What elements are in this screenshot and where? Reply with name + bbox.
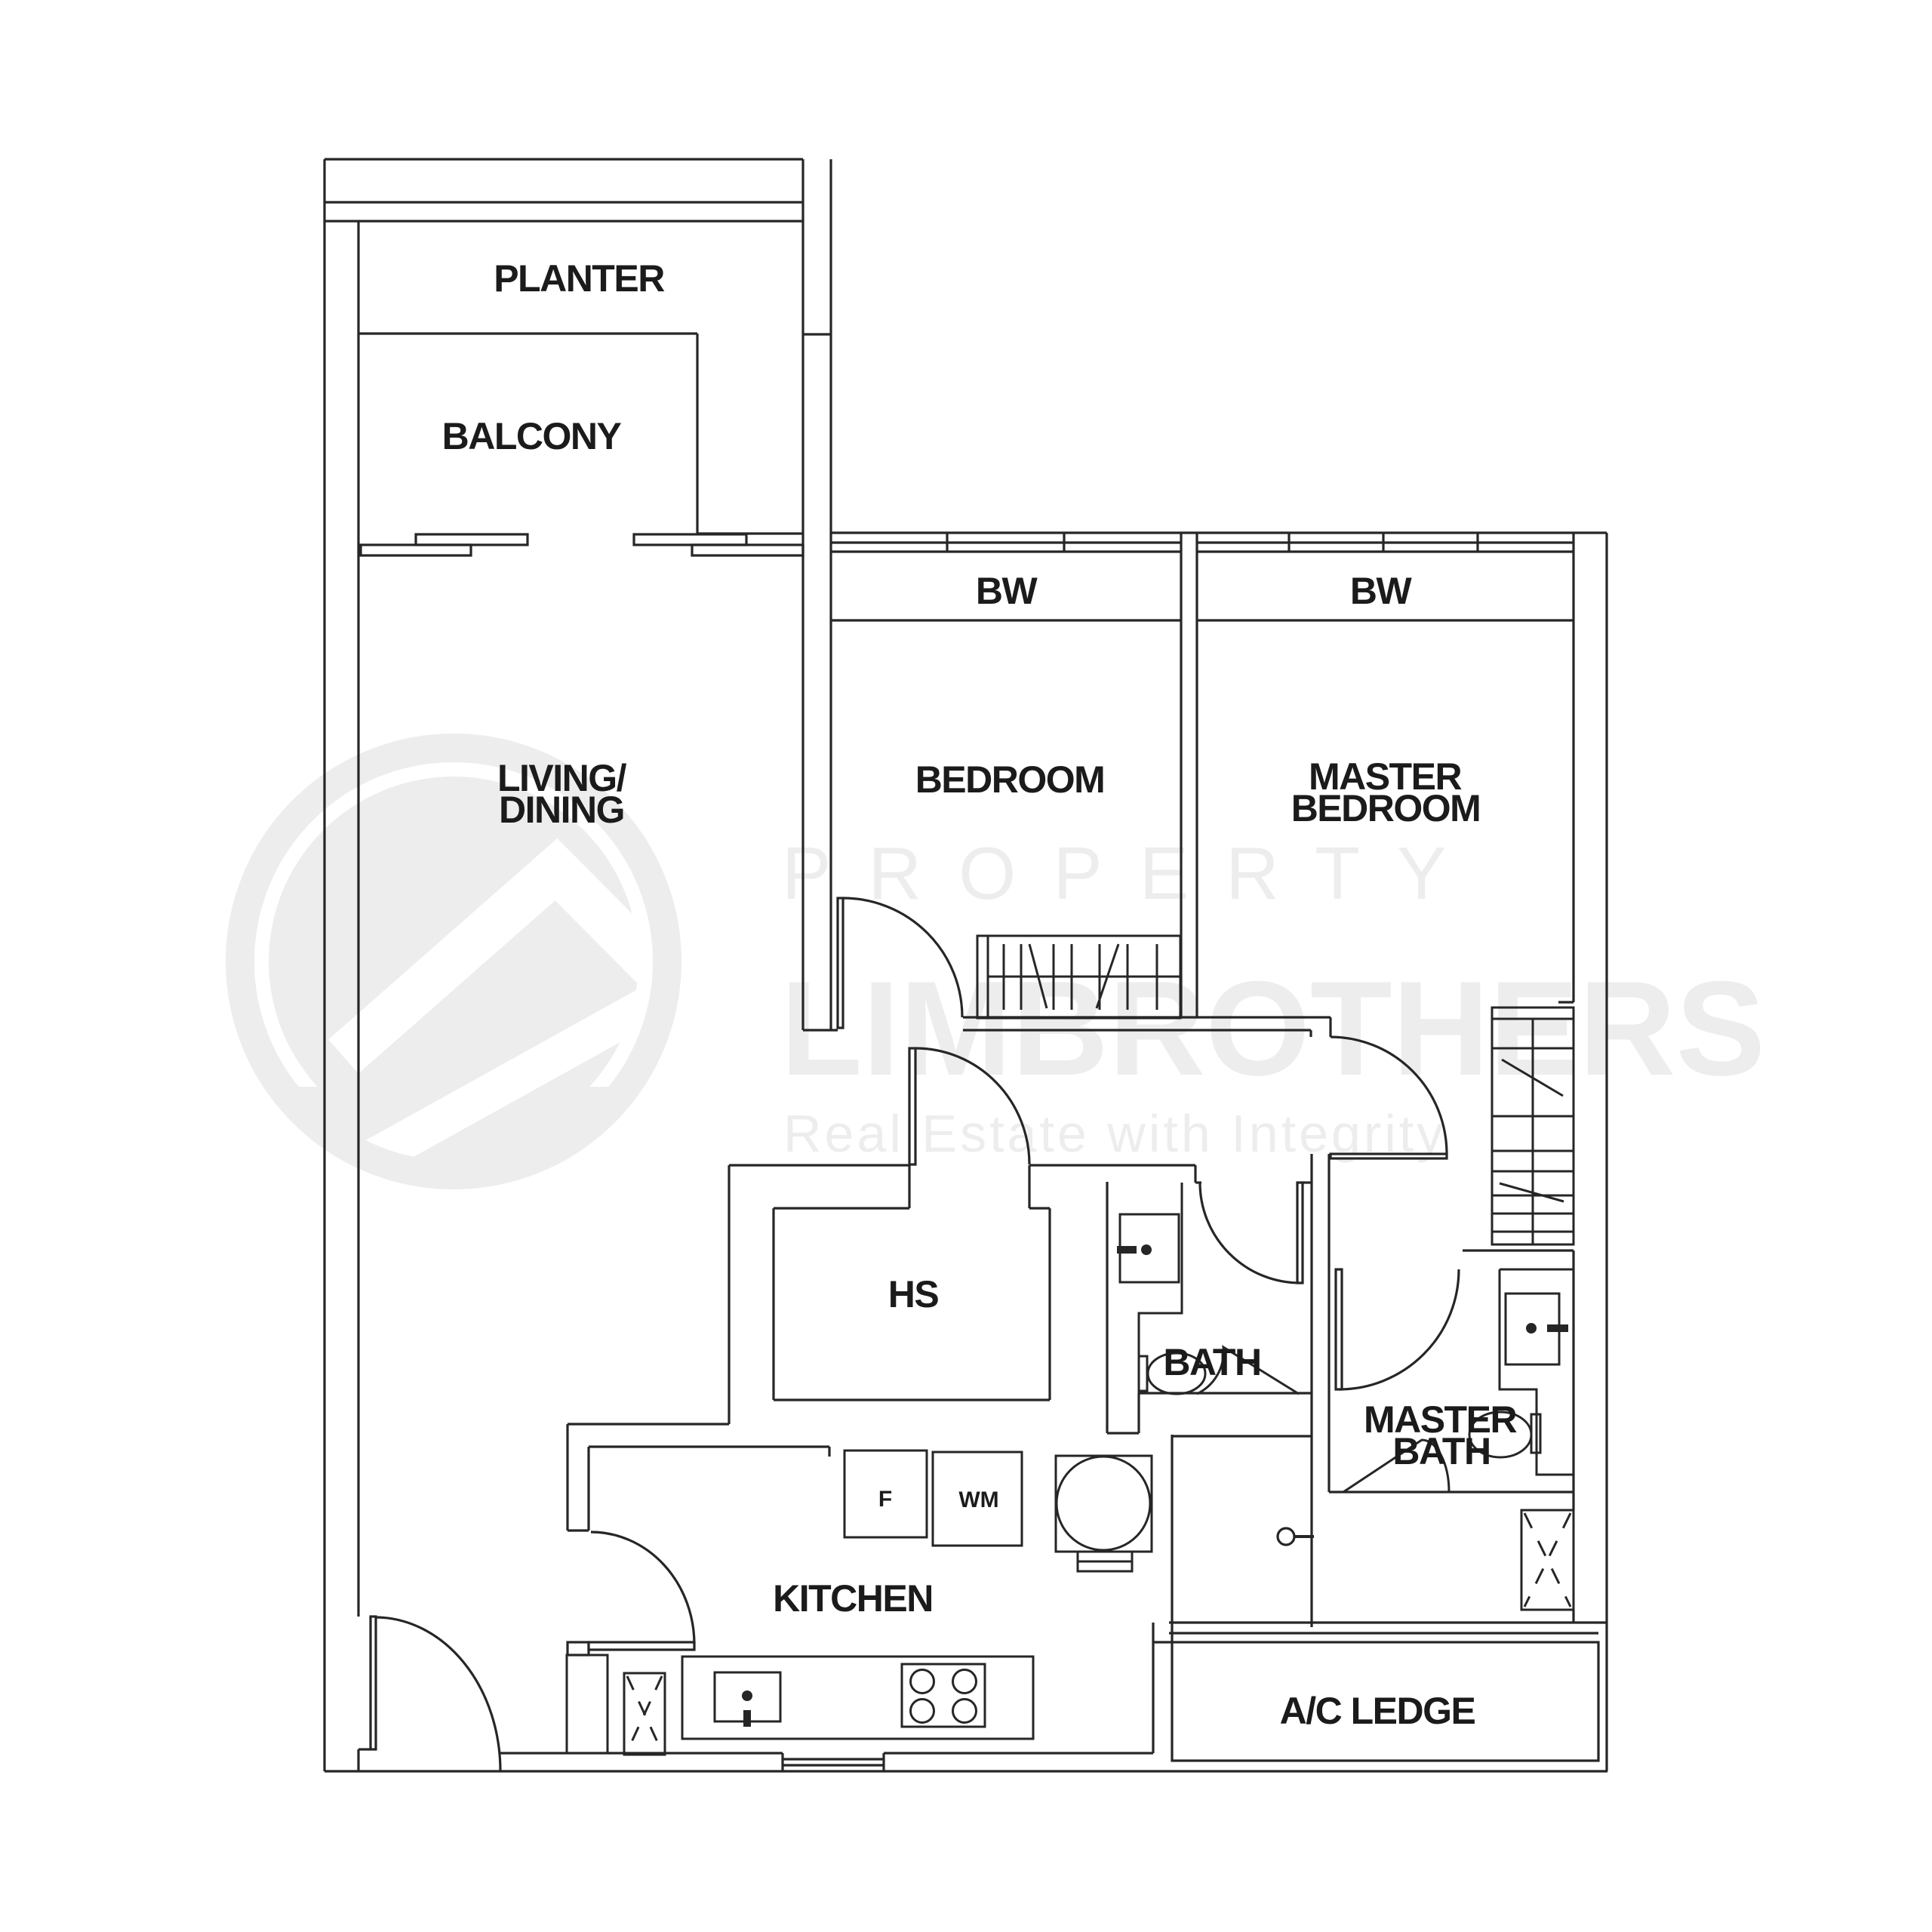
svg-text:BEDROOM: BEDROOM <box>1291 787 1481 829</box>
svg-text:KITCHEN: KITCHEN <box>773 1577 933 1620</box>
svg-text:A/C LEDGE: A/C LEDGE <box>1280 1690 1475 1732</box>
svg-text:BATH: BATH <box>1163 1341 1260 1383</box>
svg-text:BALCONY: BALCONY <box>442 415 622 457</box>
svg-text:WM: WM <box>958 1487 998 1512</box>
svg-text:DINING: DINING <box>499 789 624 831</box>
svg-text:HS: HS <box>888 1273 939 1315</box>
svg-text:F: F <box>878 1487 892 1512</box>
svg-text:PLANTER: PLANTER <box>494 257 665 300</box>
svg-text:PROPERTY: PROPERTY <box>782 832 1483 915</box>
svg-text:BW: BW <box>1350 570 1413 612</box>
svg-text:BW: BW <box>976 570 1038 612</box>
svg-text:BATH: BATH <box>1392 1430 1490 1472</box>
svg-text:LIMBROTHERS: LIMBROTHERS <box>780 953 1765 1103</box>
svg-text:BEDROOM: BEDROOM <box>915 758 1105 801</box>
